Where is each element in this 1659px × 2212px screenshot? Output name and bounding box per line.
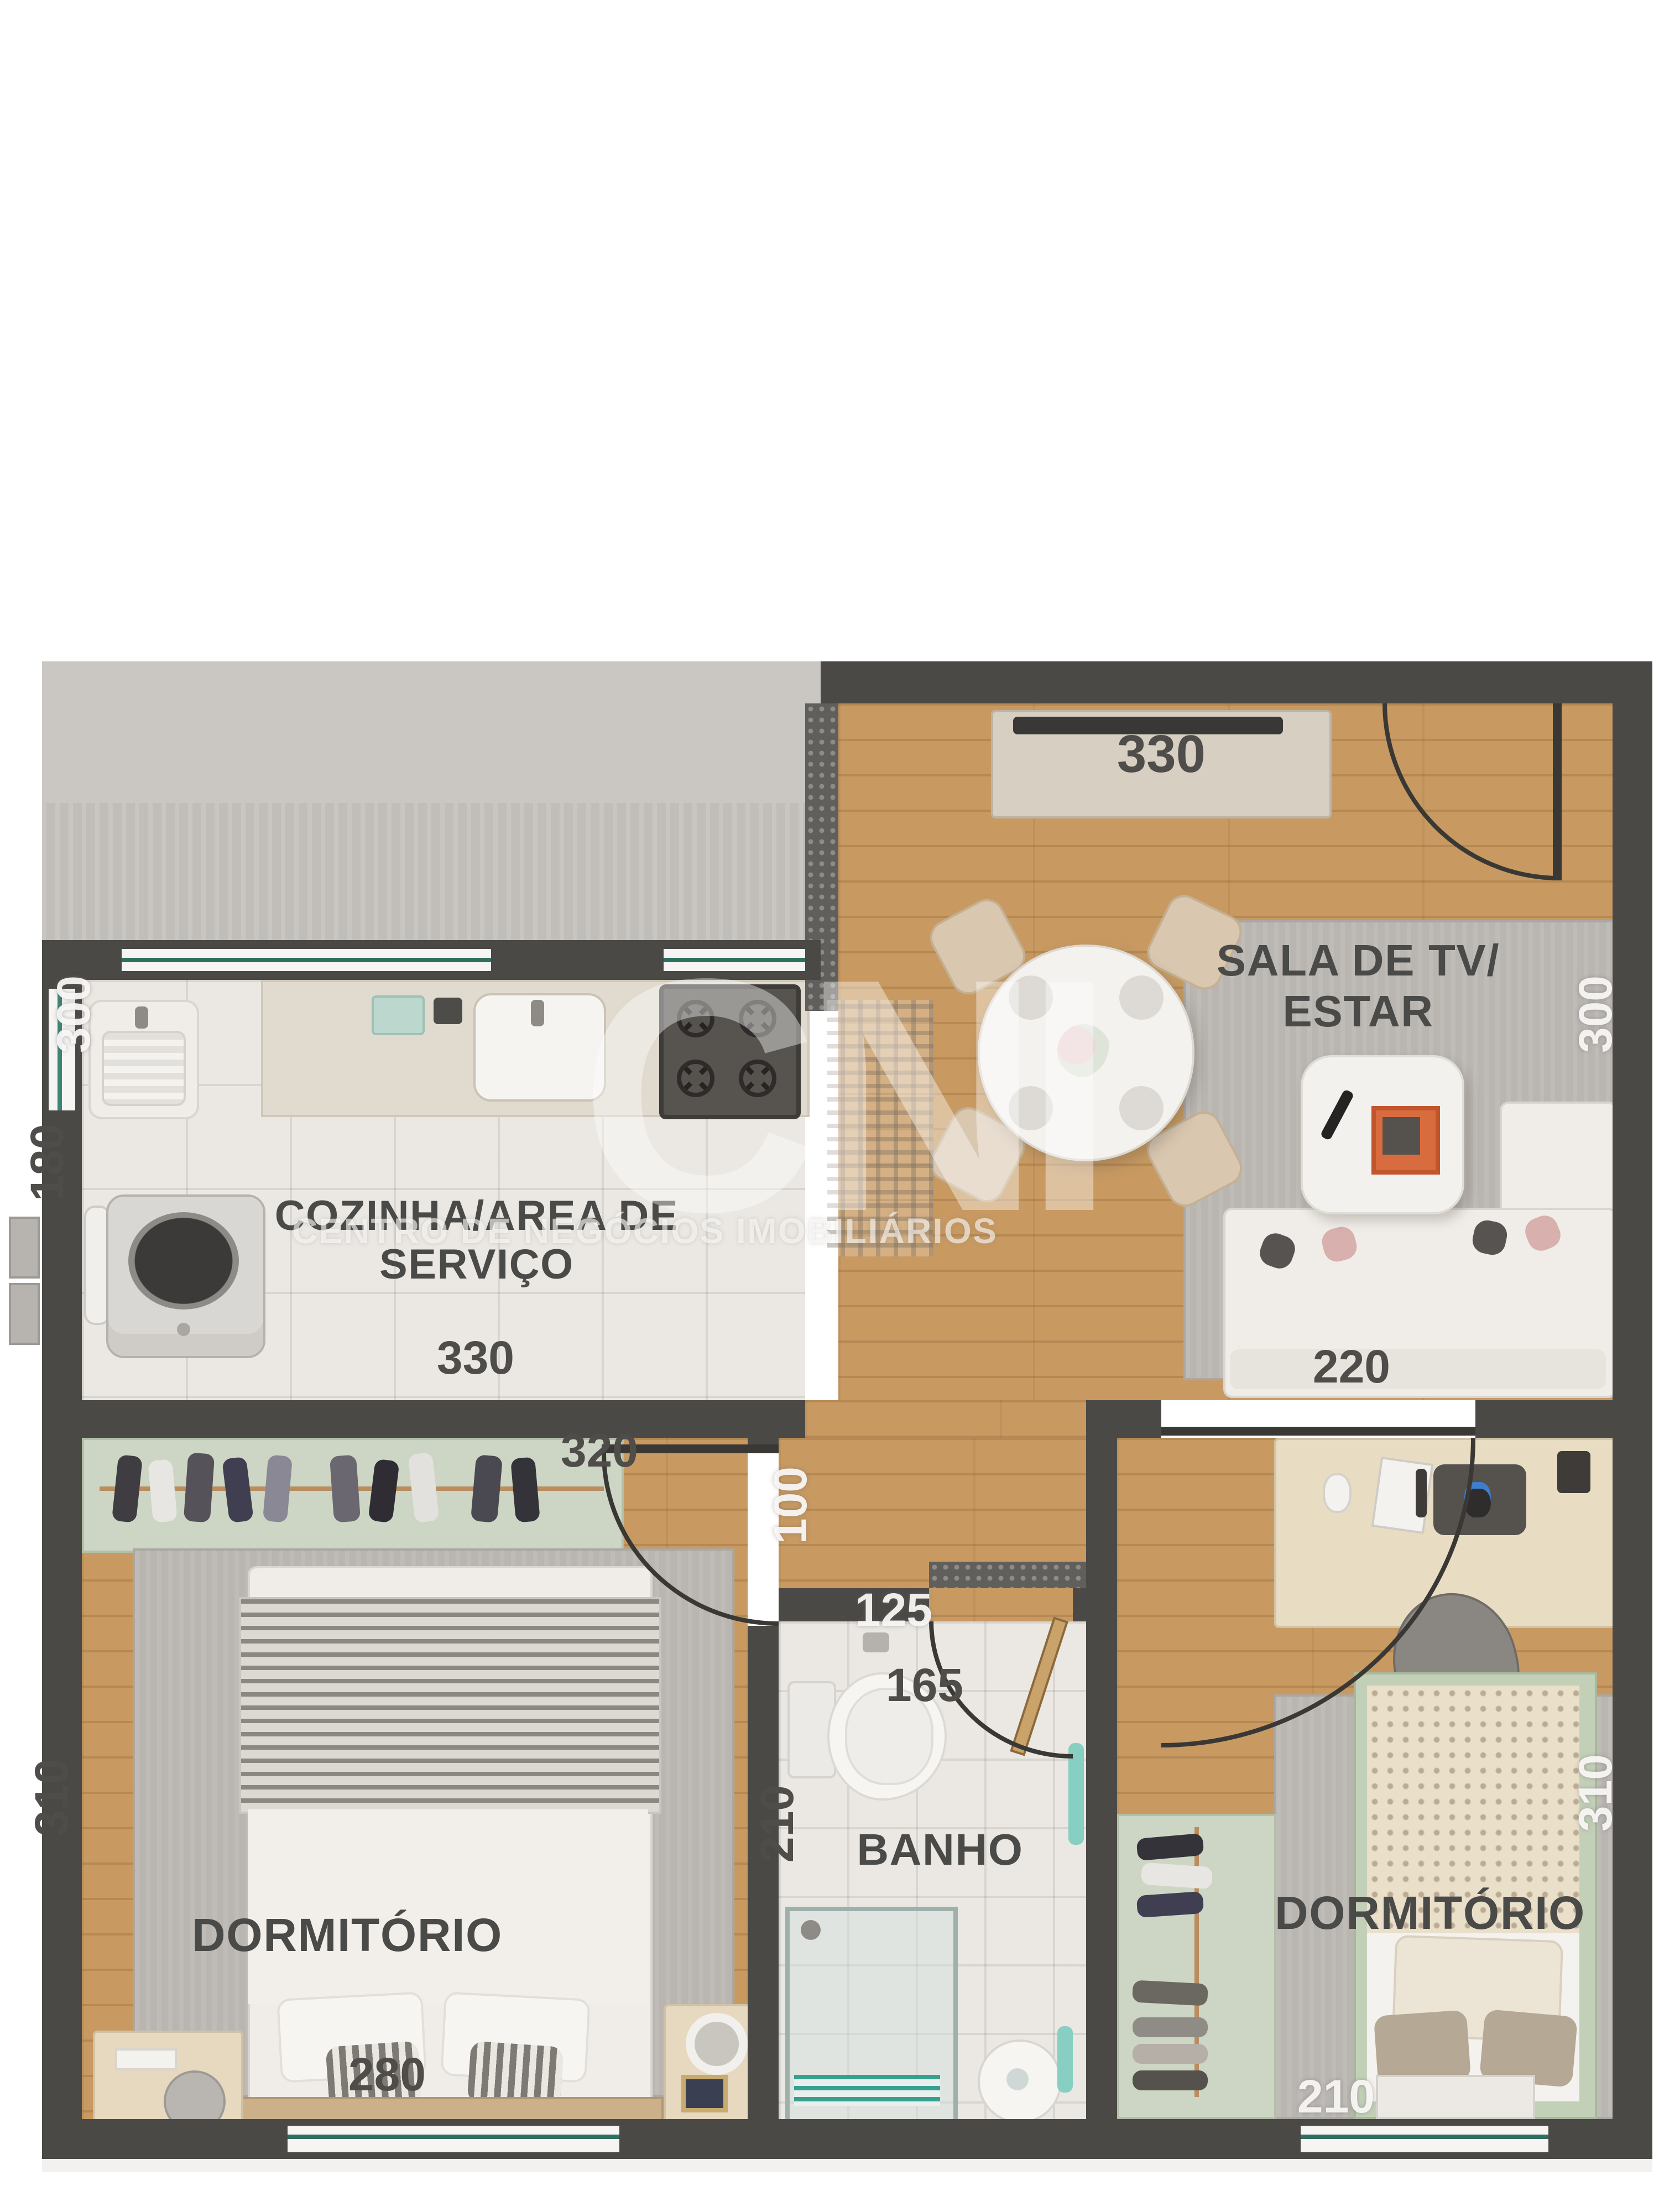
exterior-equipment <box>9 1217 40 1279</box>
bed-blanket-striped <box>239 1597 661 1814</box>
exterior-area-upper <box>42 661 821 803</box>
picture-frame <box>681 2075 728 2112</box>
wall-bath-top-b <box>1073 1588 1086 1621</box>
dim-bedroom-right-side: 310 <box>1574 1740 1620 1846</box>
hall-floor-connector <box>805 1400 1086 1438</box>
dim-bath-top: 165 <box>867 1663 982 1710</box>
dim-bath-left: 210 <box>755 1775 802 1872</box>
towel <box>1057 2026 1073 2093</box>
shower-tray <box>794 2075 940 2106</box>
foot-dresser <box>1376 2075 1535 2119</box>
flower-vase <box>1057 1024 1110 1077</box>
wall-mid-left <box>82 1400 805 1438</box>
speaker <box>1557 1451 1590 1493</box>
pedestal-sink-drain <box>1006 2068 1029 2090</box>
cooktop <box>659 984 801 1119</box>
bedroom-right-label: DORMITÓRIO <box>1225 1889 1635 1943</box>
dim-sofa: 220 <box>1296 1345 1407 1391</box>
wall-top-living <box>821 661 1652 703</box>
dim-hall: 100 <box>769 1457 815 1554</box>
table-lamp <box>686 2013 748 2075</box>
kitchen-label-line2: SERVIÇO <box>261 1243 692 1291</box>
bedroom-left-label: DORMITÓRIO <box>137 1911 557 1965</box>
dining-plate <box>1009 1086 1053 1130</box>
hanging-clothes <box>330 1454 361 1522</box>
folded-clothes <box>1133 2070 1208 2090</box>
kitchen-label: COZINHA/AREA DE SERVIÇO <box>261 1194 692 1291</box>
kitchen-faucet <box>531 1000 544 1026</box>
dim-bedroom-left-top: 320 <box>544 1429 655 1475</box>
washing-machine-button <box>177 1323 190 1336</box>
kitchen-label-line1: COZINHA/AREA DE <box>261 1194 692 1243</box>
cooktop-burner <box>677 1060 714 1097</box>
exterior-area-lower <box>42 803 821 940</box>
dim-bedroom-right-bottom: 210 <box>1279 2075 1394 2121</box>
bedroom-right-door-leaf <box>1161 1427 1475 1436</box>
laundry-faucet <box>135 1006 148 1029</box>
bed-headboard <box>239 2097 664 2121</box>
dim-laundry-left: 180 <box>25 1109 72 1215</box>
bedroom-right-window <box>1301 2126 1548 2152</box>
cooktop-burner <box>677 1000 714 1037</box>
wall-bedroom-left-right-b <box>748 1626 779 2119</box>
dim-laundry-corner: 300 <box>52 961 98 1067</box>
dim-living-right: 300 <box>1574 961 1620 1067</box>
cutting-board <box>372 995 425 1035</box>
living-room-label: SALA DE TV/ ESTAR <box>1181 938 1535 1040</box>
bathroom-label: BANHO <box>841 1827 1040 1878</box>
bath-door-threshold <box>929 1562 1086 1588</box>
kitchen-window <box>122 949 491 971</box>
dim-kitchen-bottom: 330 <box>420 1336 531 1383</box>
dim-living-top: 330 <box>1095 730 1228 783</box>
living-room-label-line2: ESTAR <box>1181 989 1535 1040</box>
counter-item <box>434 998 462 1024</box>
exterior-equipment <box>9 1283 40 1345</box>
living-room-label-line1: SALA DE TV/ <box>1181 938 1535 989</box>
bed-duvet <box>248 1809 648 2004</box>
shower-head <box>801 1920 821 1940</box>
wall-mid-right-b <box>1475 1400 1613 1438</box>
wall-bottom-sill <box>42 2159 1652 2172</box>
cooktop-burner <box>739 1060 776 1097</box>
dim-hall-threshold: 125 <box>836 1588 951 1635</box>
kitchen-window-2 <box>664 949 805 971</box>
floor-plan: SALA DE TV/ ESTAR COZINHA/AREA DE SERVIÇ… <box>0 0 1659 2212</box>
washing-machine-drum <box>128 1212 239 1310</box>
hanging-clothes <box>1136 1891 1204 1918</box>
dining-plate <box>1119 975 1164 1020</box>
coffee-table-book-page <box>1383 1117 1420 1155</box>
wall-mid-right-a <box>1086 1400 1161 1438</box>
laundry-sink-basin <box>102 1031 186 1106</box>
hanging-clothes <box>184 1452 215 1522</box>
dim-bedroom-left-side: 310 <box>30 1744 76 1850</box>
cooktop-burner <box>739 1000 776 1037</box>
sofa-backrest <box>1230 1349 1606 1389</box>
wall-bath-right <box>1086 1588 1117 2119</box>
wall-bedroom-right-left <box>1086 1438 1117 1588</box>
hanging-clothes <box>1132 1980 1208 2006</box>
folded-clothes <box>1133 2017 1208 2037</box>
dining-plate <box>1009 975 1053 1020</box>
vanity-items <box>115 2048 177 2070</box>
bedroom-left-window <box>288 2126 619 2152</box>
dim-bedroom-left-bottom: 280 <box>332 2053 442 2099</box>
folded-clothes <box>1133 2044 1208 2064</box>
dining-plate <box>1119 1086 1164 1130</box>
